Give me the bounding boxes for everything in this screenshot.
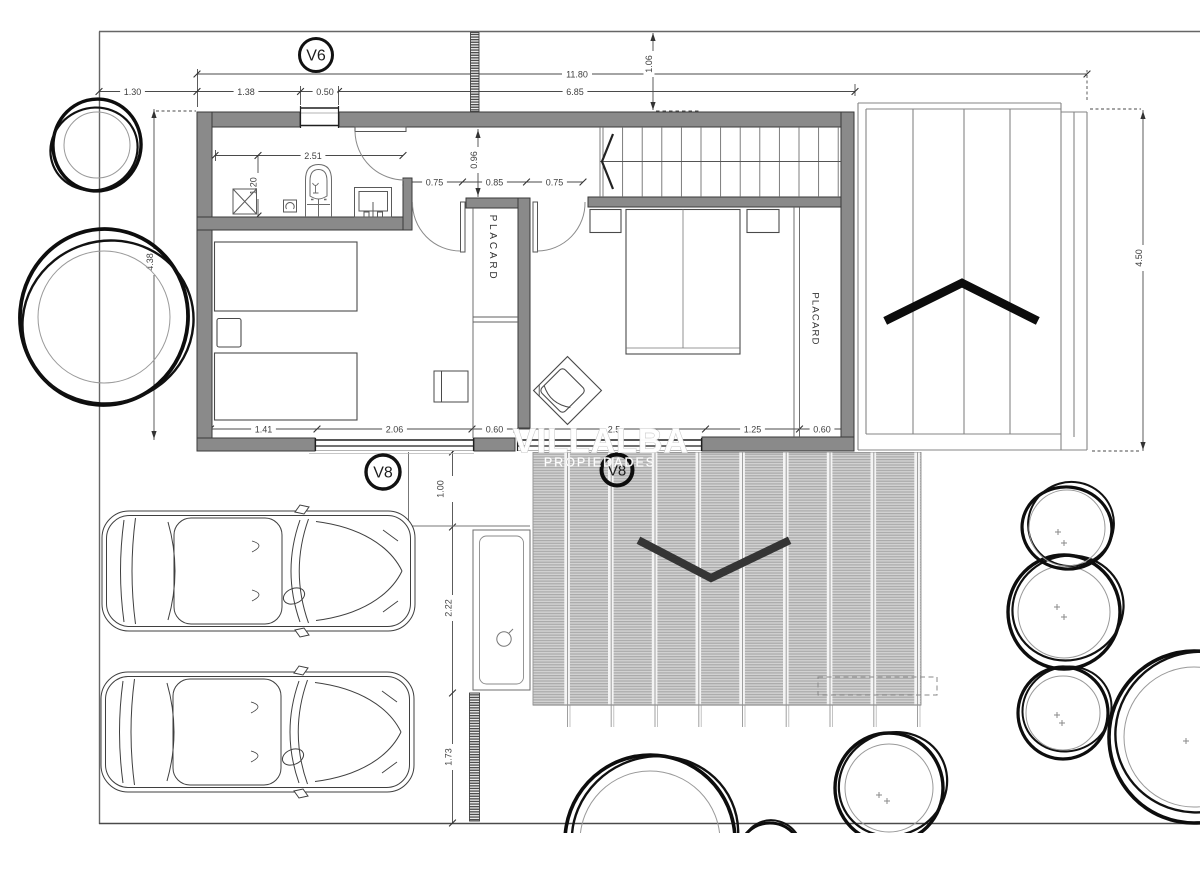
svg-text:2.06: 2.06 xyxy=(386,425,404,435)
svg-text:11.80: 11.80 xyxy=(566,70,588,80)
svg-text:V6: V6 xyxy=(306,48,326,65)
svg-text:PLACARD: PLACARD xyxy=(487,215,498,282)
svg-text:0.96: 0.96 xyxy=(469,151,479,169)
svg-text:0.75: 0.75 xyxy=(546,178,564,188)
svg-text:PROPIEDADES: PROPIEDADES xyxy=(544,456,656,470)
svg-text:1.25: 1.25 xyxy=(744,425,762,435)
svg-text:1.38: 1.38 xyxy=(237,87,255,97)
svg-text:1.73: 1.73 xyxy=(444,748,454,766)
svg-text:4.38: 4.38 xyxy=(145,253,155,271)
svg-text:0.60: 0.60 xyxy=(813,425,831,435)
svg-text:0.75: 0.75 xyxy=(426,178,444,188)
svg-text:4.50: 4.50 xyxy=(1134,249,1144,267)
svg-text:2.22: 2.22 xyxy=(444,599,454,617)
svg-text:1.41: 1.41 xyxy=(255,425,273,435)
svg-text:1.06: 1.06 xyxy=(644,55,654,73)
svg-text:1.00: 1.00 xyxy=(436,480,446,498)
svg-text:0.50: 0.50 xyxy=(316,87,334,97)
svg-text:6.85: 6.85 xyxy=(566,87,584,97)
svg-text:0.60: 0.60 xyxy=(486,425,504,435)
svg-text:1.30: 1.30 xyxy=(124,87,142,97)
svg-text:2.51: 2.51 xyxy=(304,151,322,161)
svg-text:PLACARD: PLACARD xyxy=(810,292,821,345)
svg-text:0.85: 0.85 xyxy=(486,178,504,188)
svg-text:V8: V8 xyxy=(373,465,393,482)
